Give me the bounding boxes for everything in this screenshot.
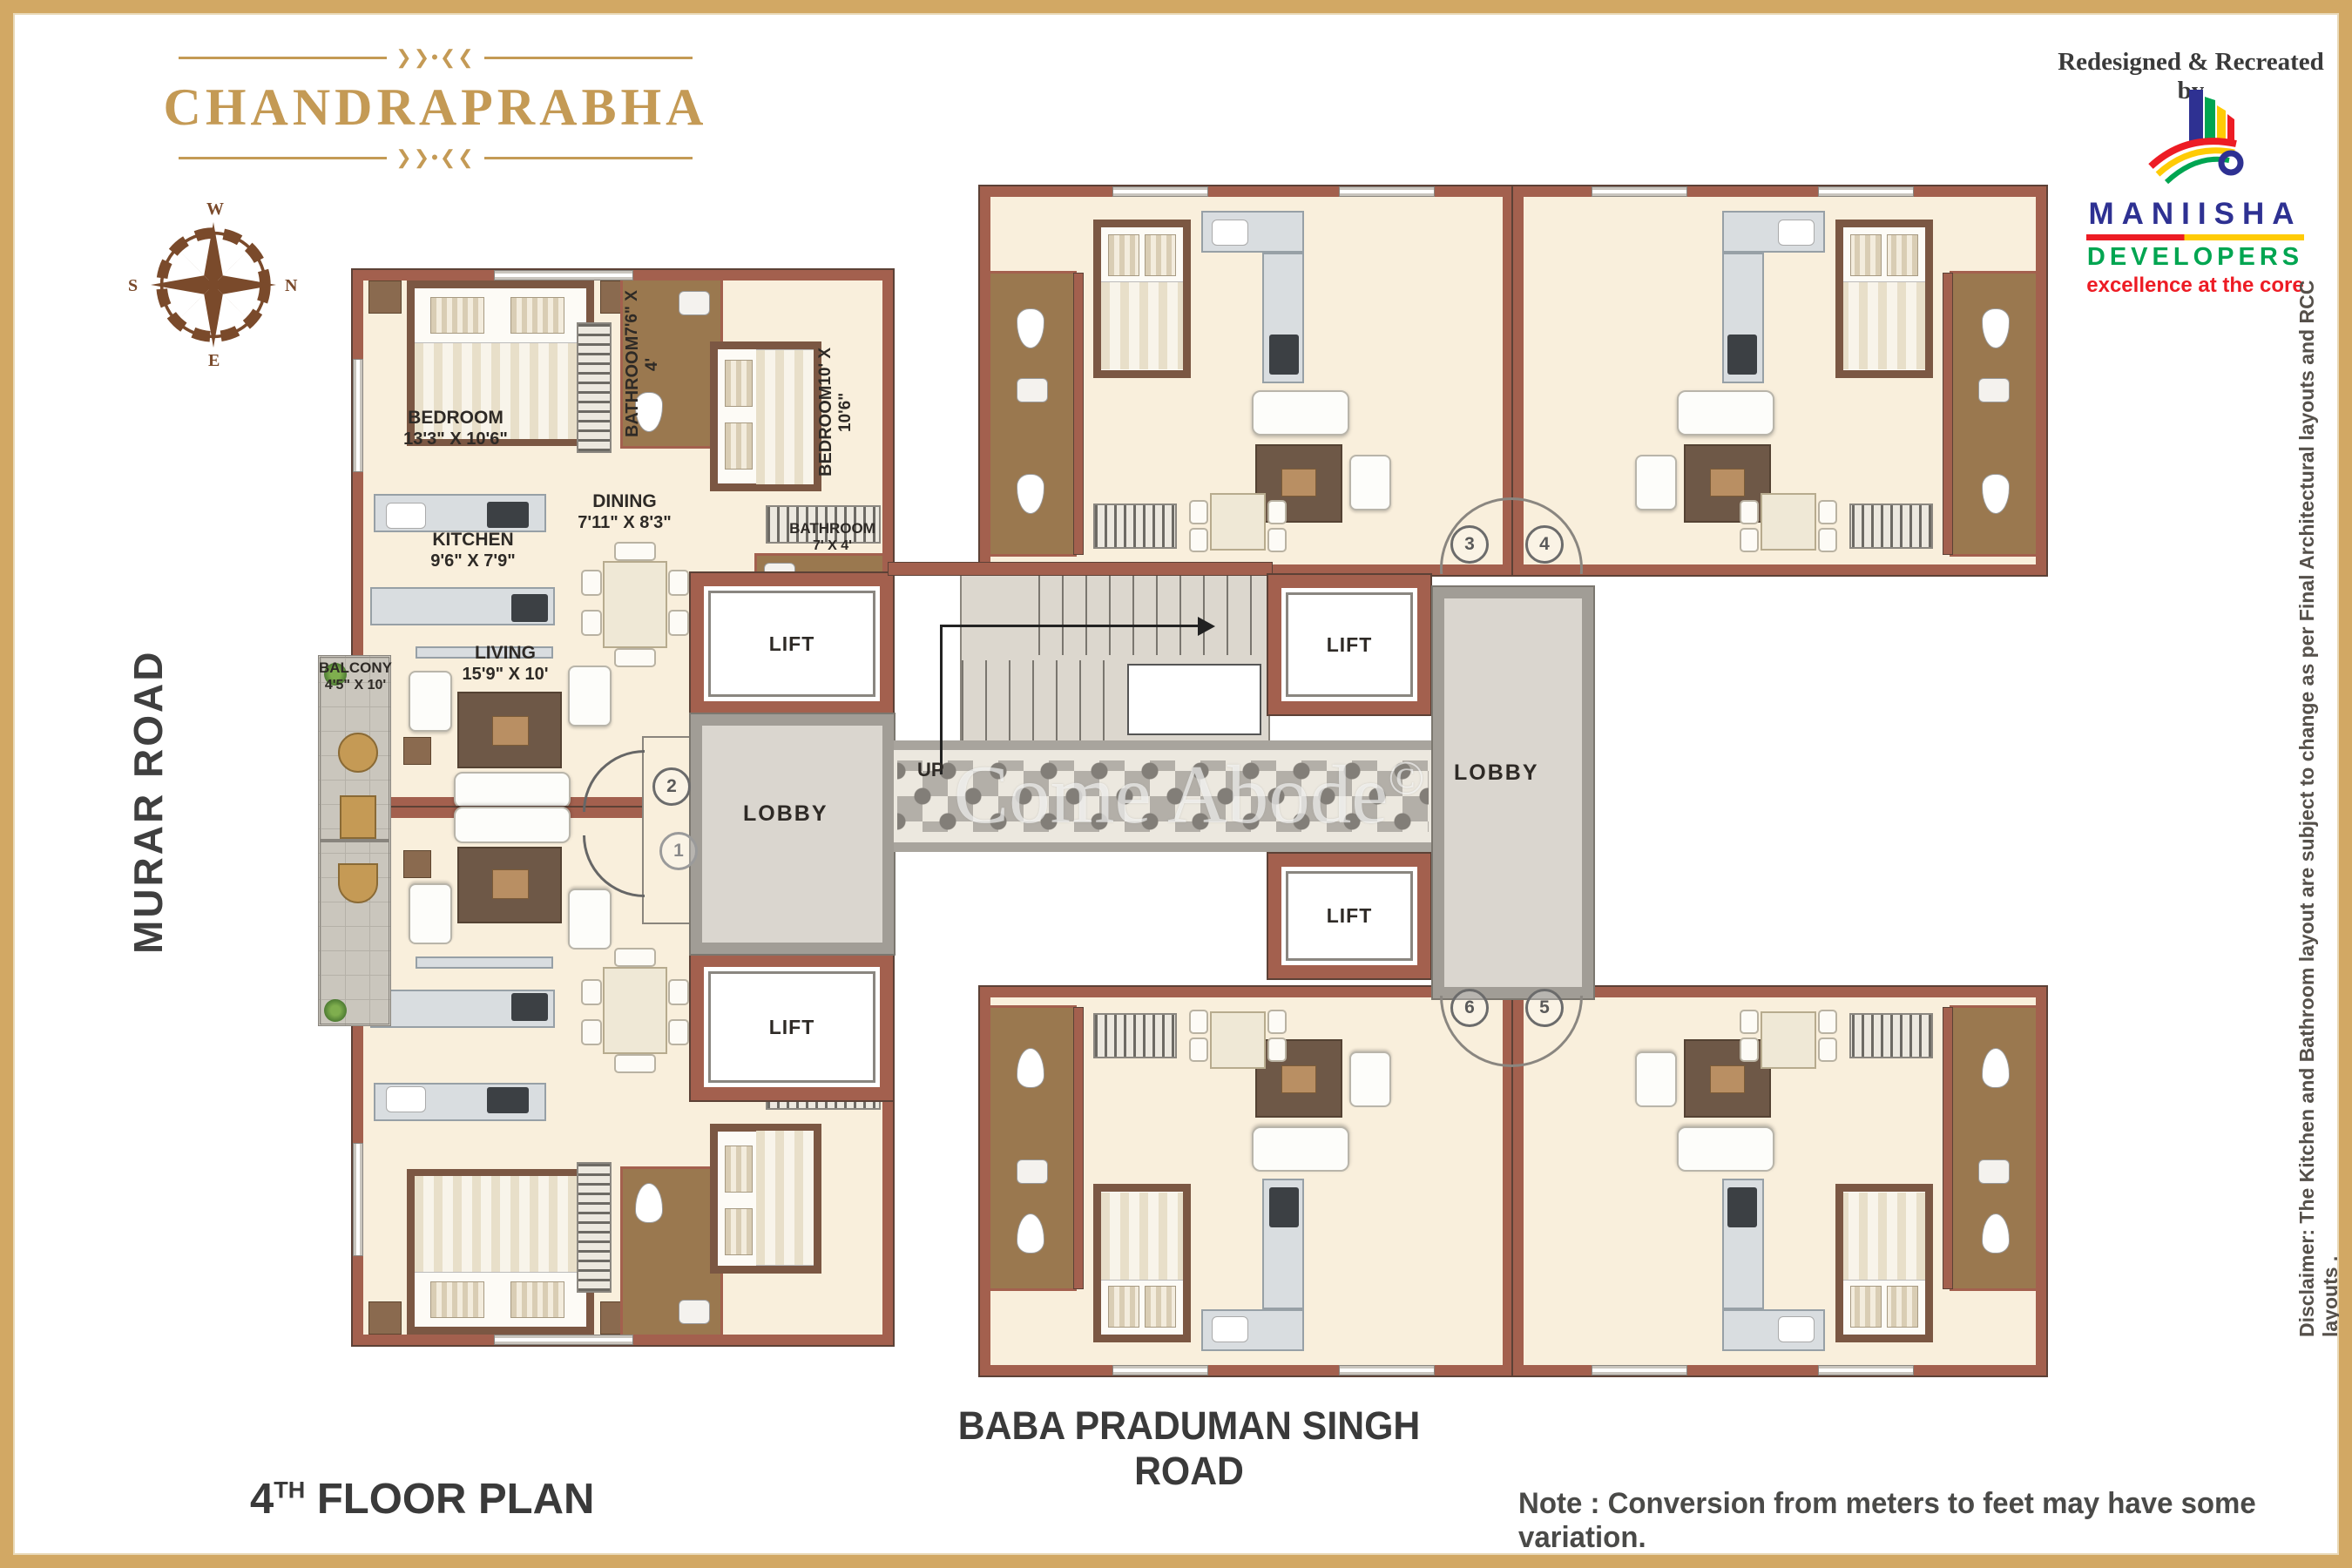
logo-name: MANIISHA: [2078, 197, 2313, 232]
sofa: [1677, 1126, 1774, 1172]
lift-label: LIFT: [769, 1016, 815, 1039]
dining-chair: [668, 979, 689, 1005]
stairs-arrowhead: [1198, 617, 1215, 636]
window: [353, 359, 363, 472]
room-label-bedroom2: BEDROOM10' X 10'6": [816, 334, 855, 490]
lobby-label: LOBBY: [743, 801, 828, 827]
dining-chair: [614, 542, 656, 561]
dining-chair: [1740, 500, 1759, 524]
dining-chair: [1189, 1037, 1208, 1062]
watermark: Come Abode©: [919, 747, 1459, 842]
dining-table: [1210, 493, 1266, 551]
lift-label: LIFT: [769, 632, 815, 656]
room-label-kitchen: KITCHEN9'6" X 7'9": [386, 529, 560, 571]
kitchen-counter: [374, 1083, 546, 1121]
lobby-left-floor: [691, 714, 894, 954]
dining-chair: [1818, 1010, 1837, 1034]
wardrobe: [577, 322, 612, 453]
compass-w: W: [206, 199, 224, 220]
armchair: [1635, 1051, 1677, 1107]
dining-chair: [1740, 1037, 1759, 1062]
right-wing-apartment: [1513, 987, 2046, 1375]
logo-tagline: excellence at the core: [2078, 274, 2313, 298]
dining-chair: [1740, 528, 1759, 552]
wardrobe: [1093, 1013, 1177, 1058]
dining-chair: [668, 570, 689, 596]
armchair: [409, 883, 452, 944]
kitchen-counter: [1722, 1179, 1764, 1309]
lift-label: LIFT: [1327, 904, 1373, 928]
bathroom-floor: [1952, 1008, 2036, 1288]
wardrobe: [577, 1162, 612, 1293]
bed: [1093, 220, 1191, 378]
wardrobe: [1849, 504, 1933, 549]
right-wing-apartment: [980, 987, 1513, 1375]
dining-table: [1761, 493, 1816, 551]
room-label-bathroom2: BATHROOM7' X 4': [760, 520, 904, 555]
bathroom-floor: [990, 274, 1074, 554]
unit-number-3: 3: [1450, 525, 1489, 564]
kitchen-counter: [1201, 1309, 1304, 1351]
lift-shaft: LIFT: [691, 954, 893, 1100]
road-label-bottom: BABA PRADUMAN SINGH ROAD: [900, 1403, 1479, 1494]
unit-number-6: 6: [1450, 989, 1489, 1027]
armchair: [568, 889, 612, 950]
armchair: [1349, 1051, 1391, 1107]
window: [1112, 1365, 1208, 1375]
floor-plan-title: 4TH FLOOR PLAN: [250, 1475, 594, 1524]
window: [1818, 186, 1914, 197]
bed: [407, 1169, 594, 1335]
dining-chair: [1740, 1010, 1759, 1034]
bed: [710, 341, 821, 491]
kitchen-counter: [370, 587, 555, 625]
developer-logo: MANIISHA DEVELOPERS excellence at the co…: [2078, 86, 2313, 298]
tv-unit: [416, 956, 553, 969]
dining-table: [1761, 1011, 1816, 1069]
sofa: [454, 807, 571, 843]
sofa: [454, 772, 571, 808]
window: [494, 270, 633, 280]
ornament-top: ❯❯•❮❮: [179, 46, 693, 69]
kitchen-counter: [1262, 1179, 1304, 1309]
kitchen-counter: [370, 990, 555, 1028]
dining-table: [603, 561, 667, 648]
nightstand: [368, 280, 402, 314]
window: [1592, 186, 1687, 197]
compass-s: S: [128, 276, 138, 296]
unit-4-block: [1513, 186, 2046, 575]
kitchen-counter: [1722, 211, 1825, 253]
window: [1818, 1365, 1914, 1375]
bathroom-floor: [623, 1169, 720, 1335]
page-title: CHANDRAPRABHA: [126, 78, 745, 138]
dining-chair: [1267, 1037, 1287, 1062]
conversion-note: Note : Conversion from meters to feet ma…: [1518, 1487, 2295, 1555]
lift-shaft: LIFT: [1268, 854, 1430, 978]
nightstand: [368, 1301, 402, 1335]
staircase: [962, 575, 1268, 740]
room-label-bedroom1: BEDROOM13'3" X 10'6": [368, 407, 543, 449]
floor-plan-page: ❯❯•❮❮ CHANDRAPRABHA ❯❯•❮❮ W E S N Redesi…: [0, 0, 2352, 1568]
entry-vestibule: [644, 738, 693, 923]
dining-chair: [1189, 528, 1208, 552]
lift-shaft: LIFT: [691, 573, 893, 714]
window: [1339, 1365, 1435, 1375]
sofa: [1252, 1126, 1349, 1172]
lift-shaft: LIFT: [1268, 575, 1430, 714]
unit-5-block: [1513, 987, 2046, 1375]
road-label-left: MURAR ROAD: [125, 614, 172, 989]
window: [1592, 1365, 1687, 1375]
bed: [1835, 1184, 1933, 1342]
bed: [1835, 220, 1933, 378]
ornament-bottom: ❯❯•❮❮: [179, 146, 693, 169]
dining-chair: [581, 979, 602, 1005]
unit-number-4: 4: [1525, 525, 1564, 564]
dining-chair: [1267, 500, 1287, 524]
rug: [457, 692, 562, 768]
armchair: [1635, 455, 1677, 510]
side-table: [403, 850, 431, 878]
dining-chair: [668, 1019, 689, 1045]
compass-n: N: [285, 276, 297, 296]
dining-chair: [1189, 500, 1208, 524]
rug: [457, 847, 562, 923]
dining-chair: [1189, 1010, 1208, 1034]
room-label-dining: DINING7'11" X 8'3": [546, 490, 703, 533]
wardrobe: [1849, 1013, 1933, 1058]
room-label-bathroom1: BATHROOM7'6" X 4': [623, 290, 662, 438]
logo-divider: [2086, 234, 2304, 240]
unit-number-2: 2: [652, 767, 691, 806]
dining-chair: [1818, 500, 1837, 524]
right-wing-apartment: [1513, 186, 2046, 575]
unit-3-block: [980, 186, 1513, 575]
compass-icon: W E S N: [135, 206, 292, 363]
dining-table: [603, 967, 667, 1054]
kitchen-counter: [1262, 253, 1304, 383]
dining-table: [1210, 1011, 1266, 1069]
dining-chair: [1818, 528, 1837, 552]
logo-icon: [2139, 86, 2252, 191]
lobby-label: LOBBY: [1454, 760, 1539, 786]
bathroom-floor: [1952, 274, 2036, 554]
wardrobe: [1093, 504, 1177, 549]
disclaimer-text: Disclaimer: The Kitchen and Bathroom lay…: [2295, 266, 2342, 1337]
dining-chair: [668, 610, 689, 636]
armchair: [1349, 455, 1391, 510]
dining-chair: [1818, 1037, 1837, 1062]
unit-number-5: 5: [1525, 989, 1564, 1027]
sofa: [1252, 390, 1349, 436]
kitchen-counter: [1722, 253, 1764, 383]
bed: [710, 1124, 821, 1274]
room-label-balcony: BALCONY4'5" X 10': [318, 659, 393, 694]
room-label-living: LIVING15'9" X 10': [422, 642, 588, 685]
logo-type: DEVELOPERS: [2078, 243, 2313, 272]
dining-chair: [581, 610, 602, 636]
balcony-floor: [318, 655, 391, 1026]
dining-chair: [1267, 528, 1287, 552]
brand-block: ❯❯•❮❮ CHANDRAPRABHA ❯❯•❮❮: [126, 46, 745, 169]
dining-chair: [614, 648, 656, 667]
bed: [1093, 1184, 1191, 1342]
right-wing-apartment: [980, 186, 1513, 575]
compass-e: E: [208, 351, 220, 371]
unit-number-1: 1: [659, 832, 698, 870]
side-table: [403, 737, 431, 765]
dining-chair: [581, 570, 602, 596]
window: [1339, 186, 1435, 197]
bathroom-floor: [990, 1008, 1074, 1288]
kitchen-counter: [374, 494, 546, 532]
dining-chair: [1267, 1010, 1287, 1034]
lift-label: LIFT: [1327, 633, 1373, 657]
kitchen-counter: [1201, 211, 1304, 253]
sofa: [1677, 390, 1774, 436]
dining-chair: [614, 1054, 656, 1073]
dining-chair: [614, 948, 656, 967]
dining-chair: [581, 1019, 602, 1045]
kitchen-counter: [1722, 1309, 1825, 1351]
window: [494, 1335, 633, 1345]
window: [353, 1143, 363, 1256]
stairs-arrow: [940, 625, 1201, 627]
unit-6-block: [980, 987, 1513, 1375]
window: [1112, 186, 1208, 197]
